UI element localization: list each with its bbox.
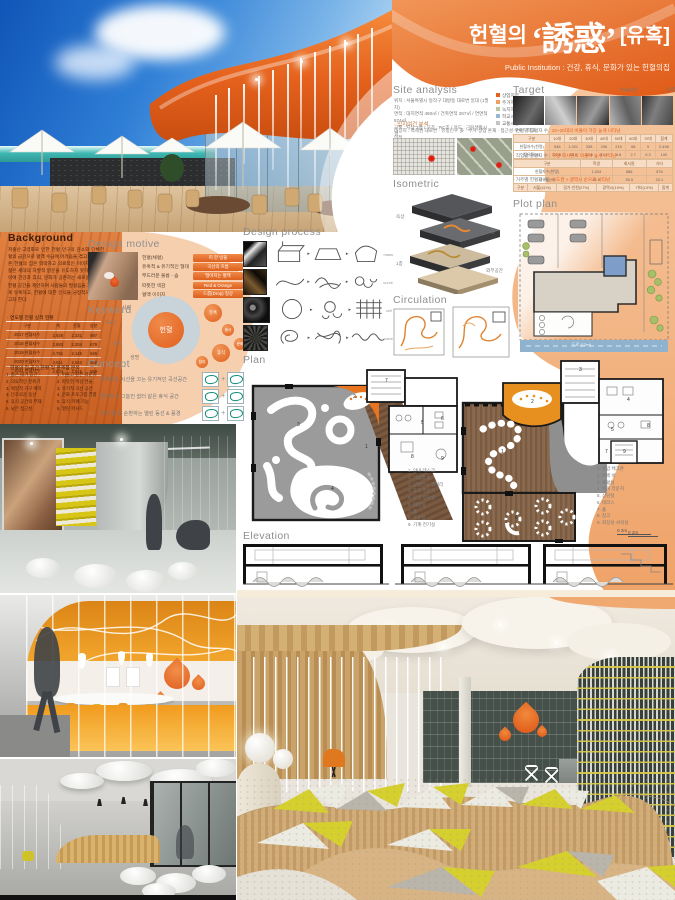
photo-segment — [577, 96, 608, 125]
poster: 헌혈의 ‘誘惑’ [유혹] Public Institution : 건강, 휴… — [0, 0, 675, 900]
arrow-icon: ▸ — [346, 279, 349, 285]
plus-sign: + — [221, 393, 225, 400]
table-header-cell: 서울(41%) — [528, 184, 557, 192]
background-header: Background — [8, 232, 73, 244]
table-header-cell: 기타 — [646, 160, 672, 168]
concept-text: 피가 돌 듯 순환하는 열린 동선 & 풍경 — [100, 410, 202, 417]
concept-item: 01 ·유혹하듯 시선을 끄는 유기적인 곡선공간+ — [88, 371, 244, 388]
plan-2f-legend: 1. 혈압 체크존2. 카페 바3. 채혈실4. 회복 라운지5. 상담실6. … — [597, 466, 628, 527]
design-process-row: ▸▸cell — [243, 296, 393, 324]
elevation-drawings — [243, 540, 673, 590]
table-cell: 100 — [655, 151, 672, 159]
pouf — [126, 570, 166, 592]
ceiling-cloud — [567, 623, 671, 661]
table-cell: 219 — [611, 143, 626, 151]
cotton — [104, 272, 114, 279]
table-cell: 2017 헌혈자수 — [6, 331, 48, 340]
arrow-icon: ▸ — [310, 307, 313, 313]
motive-tag: Red & Orange — [193, 282, 243, 289]
circulation-diagrams — [393, 306, 511, 358]
process-photo-thumb — [243, 297, 270, 323]
table-header-cell: 경기·인천(27%) — [556, 184, 596, 192]
isometric-axon — [396, 192, 508, 294]
process-sketch — [311, 240, 345, 269]
target-table3: 구분서울(41%)경기·인천(27%)광역시(19%)기타(13%)합계 — [513, 183, 673, 192]
table-cell: 545 — [550, 143, 565, 151]
concept-cube-sketch — [227, 372, 244, 387]
plan-legend-item: 6. 화장실 — [408, 502, 443, 509]
design-process-rows: ▸▸mass▸▸curve▸▸cell▸▸wave — [243, 240, 393, 352]
render-gallery — [0, 424, 236, 593]
motive-label: 헌혈(채혈) — [142, 254, 163, 261]
plot-plan-header: Plot plan — [513, 198, 557, 210]
elevation-drawing — [395, 544, 537, 587]
plan-legend-item: 6. 테라스 — [597, 500, 628, 507]
table-header-cell: 70대 — [641, 135, 656, 143]
table-header-cell: 20대 — [565, 135, 582, 143]
legend-swatch — [496, 93, 500, 97]
process-photo-thumb — [243, 325, 268, 351]
table-cell: 0.3 — [641, 151, 656, 159]
process-sketch — [349, 240, 383, 269]
keyword-word: 생명 — [130, 354, 139, 361]
design-motive-item: 헌혈(채혈)피 한 방울 — [142, 253, 243, 262]
plan-legend-item: 1. 안내 데스크 — [408, 468, 443, 475]
background-table-title: · 연도별 헌혈 실적 현황 — [7, 314, 54, 321]
problem-item: 2. 의료적인 분위기 — [6, 379, 54, 386]
plan-legend-item: 5. 문진·상담실 — [408, 495, 443, 502]
concept-cube-sketch — [202, 406, 219, 421]
room-number: 2 — [353, 394, 356, 400]
target-note: Target은 2030 MZ세대 중심 — [580, 87, 675, 94]
legend-swatch — [496, 121, 500, 125]
room-number: 5 — [611, 427, 614, 433]
arrow-icon: ▸ — [307, 279, 310, 285]
problem-item: 1. 좁은 대기 공간 — [6, 372, 54, 379]
pouf — [142, 883, 176, 895]
site-analysis-line: 위치 : 서울특별시 동작구 대방동 대로변 일대 (1필지) — [394, 98, 490, 111]
arrow-icon: ▸ — [349, 307, 352, 313]
table-cell: 2,883 — [48, 340, 67, 349]
design-process-row: ▸▸curve — [243, 268, 393, 296]
table-cell: 2,496 — [655, 143, 672, 151]
ceiling-disc — [196, 759, 236, 777]
hero-fade — [0, 0, 392, 232]
concept-text: 편안하고 그늘진 쉼터 같은 휴식 공간 — [100, 393, 202, 400]
keyword-word: 사랑 — [122, 304, 131, 311]
pouf — [120, 867, 156, 885]
plan-legend-item: 9. 화장실·샤워실 — [597, 520, 628, 527]
concept-number: 01 · — [88, 377, 100, 383]
process-sketch — [272, 268, 306, 297]
room-number: 2 — [531, 399, 534, 405]
table-cell: 576 — [646, 168, 672, 176]
table-cell: 2,204 — [67, 340, 86, 349]
process-sketch — [311, 324, 345, 353]
table-header-cell: 구분 — [514, 160, 581, 168]
process-photo-thumb — [243, 241, 267, 267]
table-header-cell: 50대 — [611, 135, 626, 143]
motive-tag: 떨어지는 혈액 — [193, 272, 243, 280]
design-process-row: ▸▸mass — [243, 240, 393, 268]
iso-label-1f: 1층 — [396, 261, 403, 268]
table-header-cell: 전혈 — [67, 322, 86, 331]
room-number: 8 — [647, 423, 650, 429]
concept-cube-sketch — [227, 389, 244, 404]
site-analysis-header: Site analysis — [393, 84, 457, 96]
process-caption: mass — [383, 252, 393, 257]
table-header-cell: 합계 — [658, 184, 672, 192]
design-process-header: Design process — [243, 226, 321, 238]
data-table: 구분서울(41%)경기·인천(27%)광역시(19%)기타(13%)합계 — [513, 183, 673, 192]
photo-segment — [513, 96, 544, 125]
table-cell: 9 — [641, 143, 656, 151]
room-number: 6 — [441, 416, 444, 422]
concept-number: 03 · — [88, 411, 100, 417]
concept-cube-sketch — [227, 406, 244, 421]
table-header-cell: 30대 — [582, 135, 597, 143]
room-number: 5 — [421, 420, 424, 426]
table-header-cell: 합계 — [655, 135, 672, 143]
table-cell: 헌혈자수(천명) — [514, 143, 550, 151]
concept-cube-sketch — [202, 389, 219, 404]
person-silhouette — [176, 825, 194, 859]
room-number: 7 — [605, 449, 608, 455]
footer-bar — [0, 895, 236, 900]
process-caption: cell — [386, 308, 392, 313]
table-header-cell: 구분 — [514, 184, 528, 192]
design-process-row: ▸▸wave — [243, 324, 393, 352]
arrow-icon: ▸ — [346, 251, 349, 257]
isometric-header: Isometric — [393, 178, 439, 190]
process-sketch — [311, 268, 345, 297]
plan-legend-item: 4. 회복 라운지 — [597, 486, 628, 493]
person-silhouette-sitting — [176, 520, 210, 550]
design-motive-items: 헌혈(채혈)피 한 방울유혹적 & 유기적인 형태곡선의 흐름부드러운 볼륨 -… — [142, 253, 243, 299]
plot-plan-road-label: 도로 (12m) — [572, 342, 591, 348]
render-orange-room — [0, 595, 236, 757]
plus-sign: + — [221, 410, 225, 417]
title-subtitle: Public Institution : 건강, 휴식, 문화가 있는 헌혈의집 — [380, 62, 670, 73]
table-cell: 2,928 — [48, 331, 67, 340]
walking-silhouette — [34, 627, 60, 697]
keyword-word: 나눔 — [112, 340, 121, 347]
site-map-aerial — [393, 138, 455, 175]
table-cell: 2018 헌혈자수 — [6, 340, 48, 349]
plan-legend-item: 1. 혈압 체크존 — [597, 466, 628, 473]
photo-segment — [545, 96, 576, 125]
motive-tag: 곡선의 흐름 — [193, 263, 243, 271]
process-sketch — [352, 296, 386, 325]
legend-swatch — [496, 107, 500, 111]
motive-label: 부드러운 볼륨 - 솜 — [142, 272, 179, 279]
process-sketch — [275, 296, 309, 325]
table-cell: 헌혈자수(천명) — [514, 168, 581, 176]
room-number: 6 — [515, 515, 518, 521]
iso-label-ext: 외부공간 — [486, 268, 503, 275]
concept-number: 02 · — [88, 394, 100, 400]
keyword-diagram: 헌혈 Red사랑나눔생명유혹봉사휴식문화참여 — [88, 294, 248, 368]
process-sketch — [314, 296, 348, 325]
title-main: ‘誘惑’ — [531, 22, 615, 58]
plus-sign: + — [221, 376, 225, 383]
concept-items: 01 ·유혹하듯 시선을 끄는 유기적인 곡선공간+02 ·편안하고 그늘진 쉼… — [88, 371, 244, 422]
room-number: 4 — [331, 486, 334, 492]
problem-item: 6. 낮은 접근성 — [6, 406, 54, 413]
keyword-word: Red — [106, 320, 115, 326]
pouf — [168, 562, 198, 580]
background-list-left: 1. 좁은 대기 공간2. 의료적인 분위기3. 획일적 가구 배치4. 단조로… — [6, 372, 54, 413]
table-header-cell: 계 — [48, 322, 67, 331]
title-prefix: 헌혈의 — [469, 24, 527, 47]
ceiling-light — [499, 623, 502, 626]
room-number: 7 — [385, 378, 388, 384]
room-number: 9 — [441, 456, 444, 462]
keyword-word: 휴식 — [212, 344, 230, 362]
room-number: 1 — [365, 444, 368, 450]
target-header: Target — [513, 84, 545, 96]
table-header-cell: 기타(13%) — [630, 184, 659, 192]
photo-segment — [610, 96, 641, 125]
motive-label: 유혹적 & 유기적인 형태 — [142, 263, 189, 270]
keyword-word: 봉사 — [222, 324, 234, 336]
plan-legend-item: 9. 기계·전기실 — [408, 522, 443, 529]
room-number: 8 — [411, 454, 414, 460]
arrow-icon: ▸ — [346, 335, 349, 341]
spot-light — [30, 442, 33, 445]
arrow-icon: ▸ — [308, 335, 311, 341]
site-marker — [496, 162, 502, 168]
arrow-icon: ▸ — [307, 251, 310, 257]
plan-legend-item: 5. 상담실 — [597, 493, 628, 500]
design-motive-photo — [88, 252, 138, 300]
plan-legend-item: 4. 휴게 라운지 — [408, 488, 443, 495]
site-marker — [428, 155, 435, 162]
cream-band — [237, 590, 675, 597]
concept-item: 03 ·피가 돌 듯 순환하는 열린 동선 & 풍경+ — [88, 405, 244, 422]
process-caption: wave — [384, 336, 393, 341]
plan-legend-item: 8. 창고 — [597, 513, 628, 520]
table-header-cell: 40대 — [597, 135, 612, 143]
ceiling-disc — [96, 761, 152, 781]
table-header-cell: 회사원 — [612, 160, 646, 168]
room-number: 3 — [579, 367, 582, 373]
room-number: 4 — [627, 397, 630, 403]
ceiling-light — [442, 645, 445, 648]
title-suffix: [유혹] — [620, 25, 670, 47]
site-marker — [470, 146, 476, 152]
gallery-painting — [2, 438, 64, 534]
ceiling-disc — [60, 773, 104, 789]
plan-2f: 123456789 — [455, 357, 675, 547]
keyword-word: 유혹 — [204, 304, 222, 322]
concept-cube-sketch — [202, 372, 219, 387]
room-number: 1 — [501, 449, 504, 455]
person-silhouette — [146, 494, 162, 550]
plan-legend-item: 8. 수유실 — [408, 515, 443, 522]
plan-1f-legend: 1. 안내 데스크2. 기념품 숍3. 상설전시 갤러리4. 휴게 라운지5. … — [408, 468, 443, 529]
spot-light — [120, 438, 123, 441]
table-header-cell: 10대 — [550, 135, 565, 143]
motive-tag: 피 한 방울 — [193, 254, 243, 262]
design-motive-header: Design motive — [88, 238, 160, 250]
render-lounge — [0, 759, 236, 895]
title-block: 헌혈의 ‘誘惑’ [유혹] Public Institution : 건강, 휴… — [380, 12, 670, 73]
concept-text: 유혹하듯 시선을 끄는 유기적인 곡선공간 — [100, 376, 202, 383]
table-cell: 338 — [582, 143, 597, 151]
process-sketch — [349, 268, 383, 297]
terrazzo-texture — [237, 777, 675, 900]
table-cell: 2.7 — [626, 151, 641, 159]
table-cell: 296 — [597, 143, 612, 151]
iso-label-roof: 옥상 — [396, 214, 404, 221]
design-motive-item: 유혹적 & 유기적인 형태곡선의 흐름 — [142, 262, 243, 271]
concept-header: Concept — [88, 358, 130, 370]
concept-item: 02 ·편안하고 그늘진 쉼터 같은 휴식 공간+ — [88, 388, 244, 405]
process-sketch — [272, 240, 306, 269]
process-caption: curve — [383, 280, 393, 285]
table-cell: 2019 헌혈자수 — [6, 349, 48, 358]
elevation-scale: 0 2m — [628, 530, 658, 537]
table-header-cell: 구분 — [514, 135, 550, 143]
table-cell: 2,231 — [67, 331, 86, 340]
render-main-hall — [237, 597, 675, 900]
table-header-cell: 학생 — [581, 160, 613, 168]
plot-plan-drawing — [518, 212, 670, 354]
table-cell: 2,145 — [67, 349, 86, 358]
keyword-center-label: 헌혈 — [160, 325, 173, 335]
design-motive-item: 따뜻한 색감Red & Orange — [142, 281, 243, 290]
plan-legend-item: 2. 기념품 숍 — [408, 475, 443, 482]
table-cell: 68 — [626, 143, 641, 151]
room-number: 9 — [623, 449, 626, 455]
circulation-header: Circulation — [393, 294, 447, 306]
keyword-word: 참여 — [196, 356, 208, 368]
wood-counter — [56, 835, 160, 863]
table-header-cell: 광역시(19%) — [596, 184, 629, 192]
table-header-cell: 구분 — [6, 322, 48, 331]
yellow-chair — [22, 851, 34, 861]
table-header-cell: 60대 — [626, 135, 641, 143]
process-sketch — [350, 324, 384, 353]
plan-legend-item: 2. 카페 바 — [597, 473, 628, 480]
process-photo-thumb — [243, 269, 267, 295]
site-map-roads — [457, 138, 512, 175]
legend-swatch — [496, 114, 500, 118]
pouf — [192, 865, 226, 883]
background-list-title: · 헌혈의 집 공간 현황 및 문제점 분석 — [7, 364, 80, 371]
motive-label: 따뜻한 색감 — [142, 282, 165, 289]
keyword-center: 헌혈 — [148, 312, 184, 348]
target-photo-strip — [513, 96, 673, 125]
process-sketch — [273, 324, 307, 353]
pouf — [26, 558, 60, 578]
ceiling-light — [555, 641, 558, 644]
elevation-drawing — [537, 544, 673, 587]
table-cell: 886 — [612, 168, 646, 176]
photo-segment — [642, 96, 673, 125]
pouf — [74, 564, 118, 588]
table-cell: 1,021 — [565, 143, 582, 151]
elevation-drawing — [243, 544, 389, 587]
table-cell: 1,034 — [581, 168, 613, 176]
design-motive-item: 부드러운 볼륨 - 솜떨어지는 혈액 — [142, 271, 243, 280]
table-cell: 2,791 — [48, 349, 67, 358]
legend-swatch — [496, 100, 500, 104]
hero-render — [0, 0, 392, 232]
room-number: 3 — [297, 422, 300, 428]
iso-label-2f: 2층 — [488, 229, 495, 236]
